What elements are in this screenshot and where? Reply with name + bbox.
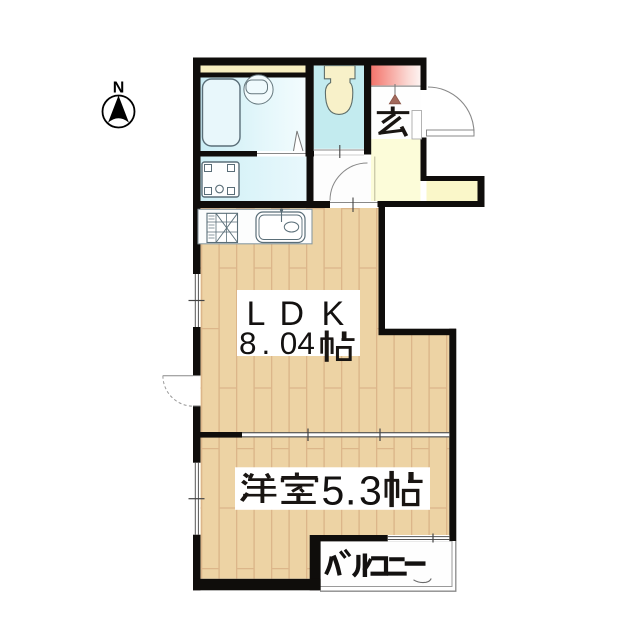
svg-text:3: 3 <box>359 468 382 514</box>
svg-text:K: K <box>322 295 345 333</box>
svg-text:.: . <box>345 468 356 514</box>
svg-text:N: N <box>113 80 125 97</box>
svg-text:04: 04 <box>280 325 315 361</box>
svg-text:5: 5 <box>322 468 345 514</box>
svg-text:.: . <box>262 325 271 361</box>
svg-text:8: 8 <box>239 325 257 361</box>
